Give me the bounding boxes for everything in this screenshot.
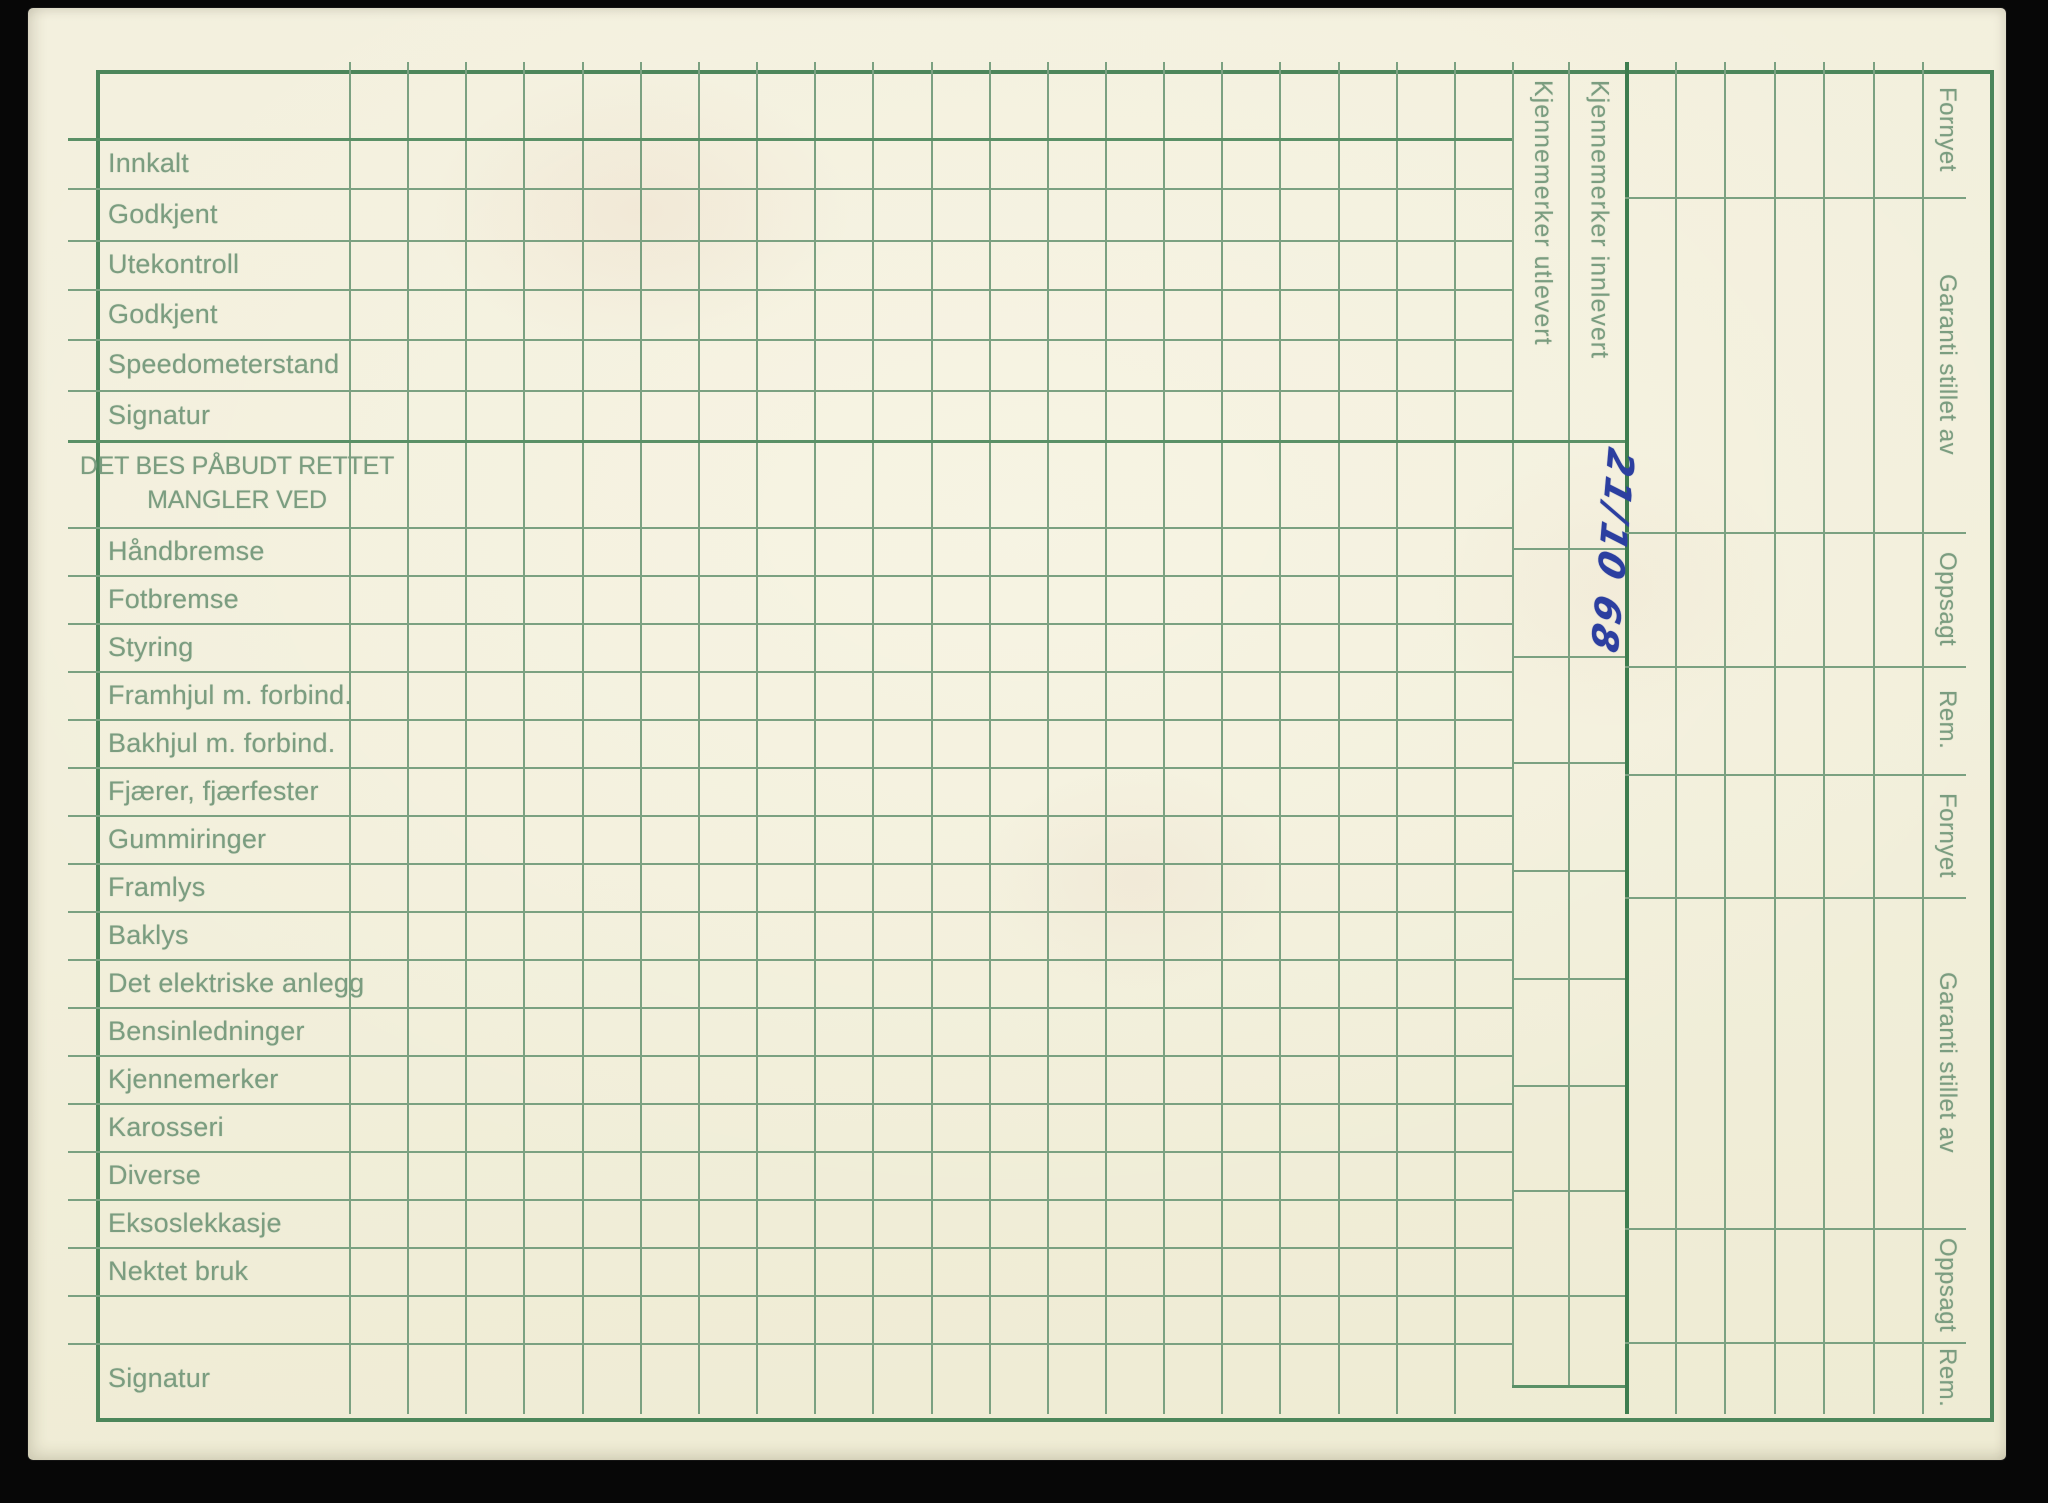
row-label-status: Signatur [108,390,408,440]
row-label-defect: Framlys [108,863,408,911]
row-label-status: Utekontroll [108,240,408,289]
right-section-label: Fornyet [1927,774,1961,897]
section-header-line2: MANGLER VED [147,484,327,518]
section-header-mangler: DET BES PÅBUDT RETTETMANGLER VED [98,440,376,527]
right-section-label: Garanti stillet av [1927,197,1961,532]
row-label-defect: Diverse [108,1151,408,1199]
row-label-defect: Kjennemerker [108,1055,408,1103]
row-label-status: Speedometerstand [108,339,408,390]
row-label-defect: Det elektriske anlegg [108,959,408,1007]
row-label-defect: Bakhjul m. forbind. [108,719,408,767]
right-section-label: Oppsagt [1927,532,1961,666]
scan-background: InnkaltGodkjentUtekontrollGodkjentSpeedo… [0,0,2048,1503]
row-label-defect: Bensinledninger [108,1007,408,1055]
row-label-status: Godkjent [108,289,408,339]
row-label-defect: Fotbremse [108,575,408,623]
row-label-footer-signatur: Signatur [108,1343,408,1414]
row-label-defect: Nektet bruk [108,1247,408,1295]
row-label-defect: Karosseri [108,1103,408,1151]
row-label-defect: Fjærer, fjærfester [108,767,408,815]
row-label-status: Innkalt [108,138,408,188]
plate-column-header: Kjennemerker innlevert [1580,80,1614,470]
row-label-defect: Gummiringer [108,815,408,863]
row-label-status: Godkjent [108,188,408,240]
inspection-card: InnkaltGodkjentUtekontrollGodkjentSpeedo… [28,8,2006,1460]
row-label-defect: Eksoslekkasje [108,1199,408,1247]
section-header-line1: DET BES PÅBUDT RETTET [80,450,394,484]
right-section-label: Rem. [1927,1342,1961,1414]
row-label-defect: Baklys [108,911,408,959]
right-section-label: Oppsagt [1927,1228,1961,1342]
row-label-defect: Framhjul m. forbind. [108,671,408,719]
right-section-label: Garanti stillet av [1927,897,1961,1228]
plate-column-header: Kjennemerker utlevert [1523,80,1557,470]
row-label-defect: Håndbremse [108,527,408,575]
right-section-label: Rem. [1927,666,1961,774]
row-label-defect: Styring [108,623,408,671]
right-section-label: Fornyet [1927,62,1961,197]
